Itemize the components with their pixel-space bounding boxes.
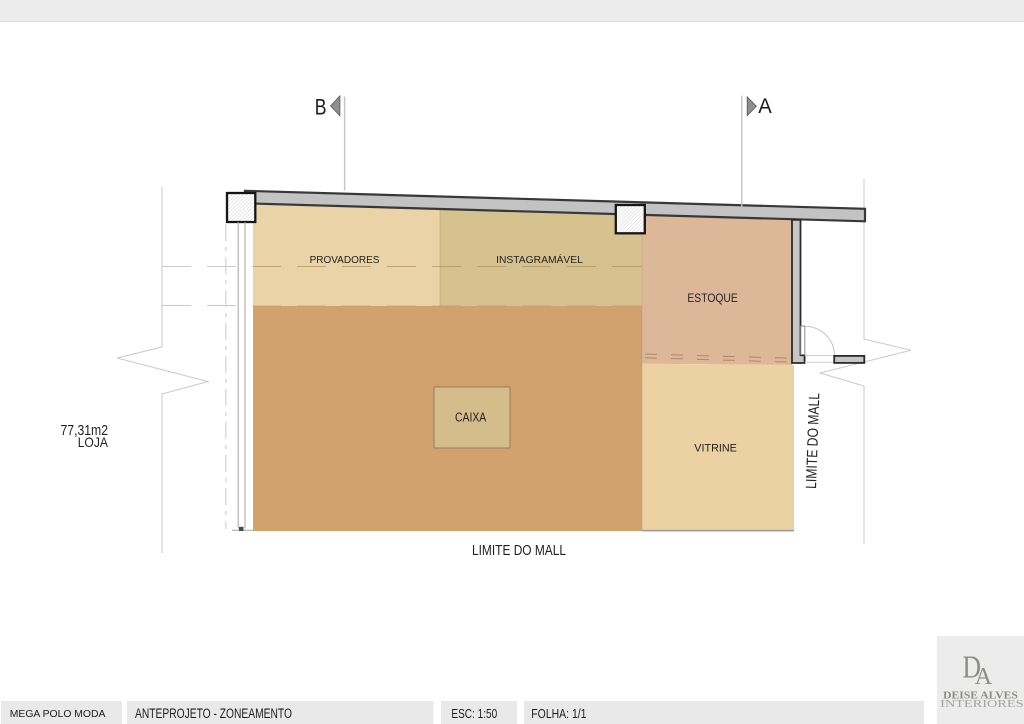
svg-text:LOJA: LOJA	[78, 434, 109, 450]
svg-text:A: A	[758, 94, 772, 118]
svg-text:ANTEPROJETO - ZONEAMENTO: ANTEPROJETO - ZONEAMENTO	[135, 706, 292, 721]
svg-text:CAIXA: CAIXA	[455, 411, 487, 425]
svg-text:INSTAGRAMÁVEL: INSTAGRAMÁVEL	[496, 253, 583, 266]
svg-text:B: B	[315, 96, 327, 120]
svg-text:VITRINE: VITRINE	[694, 443, 737, 455]
svg-text:INTERIORES: INTERIORES	[940, 699, 1023, 710]
svg-text:LIMITE DO MALL: LIMITE DO MALL	[472, 543, 566, 559]
svg-text:ESC: 1:50: ESC: 1:50	[451, 707, 497, 721]
svg-text:ESTOQUE: ESTOQUE	[687, 291, 737, 305]
svg-text:LIMITE DO MALL: LIMITE DO MALL	[803, 393, 823, 490]
svg-text:PROVADORES: PROVADORES	[310, 255, 380, 266]
svg-text:MEGA POLO MODA: MEGA POLO MODA	[10, 709, 106, 720]
svg-text:FOLHA: 1/1: FOLHA: 1/1	[531, 707, 586, 721]
svg-text:A: A	[975, 664, 993, 690]
